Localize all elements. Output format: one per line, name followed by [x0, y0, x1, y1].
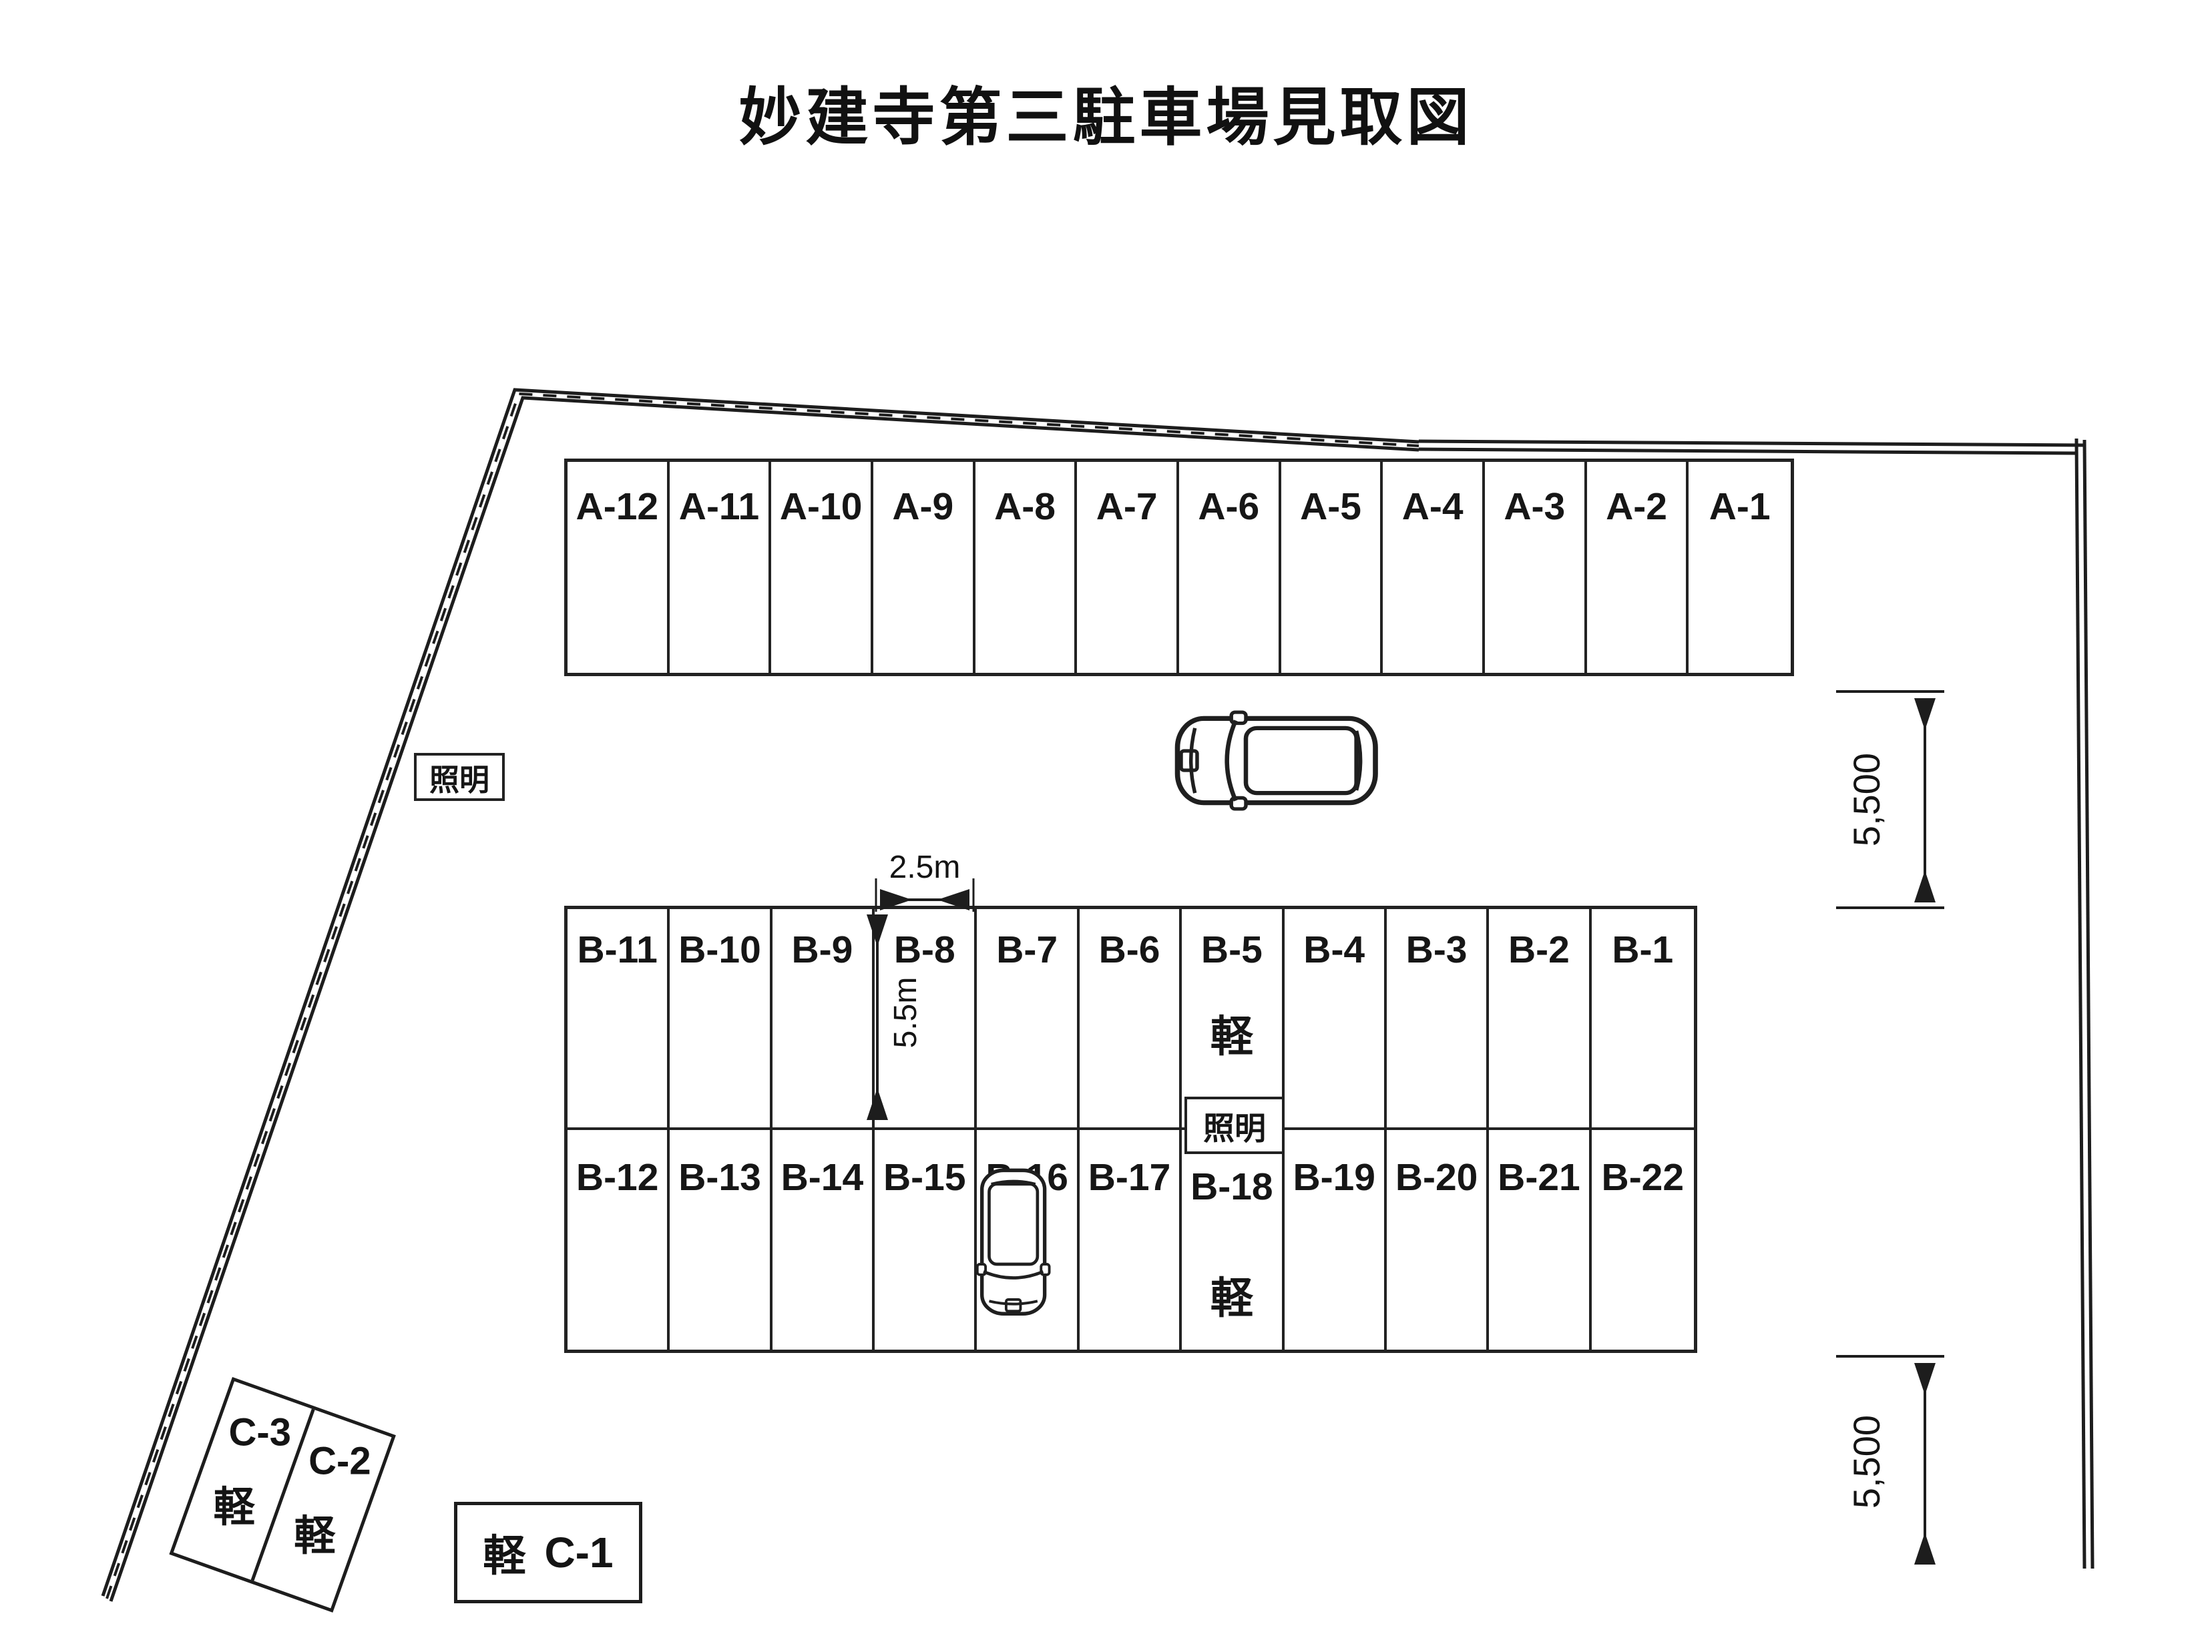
- stall-label: A-2: [1587, 485, 1687, 529]
- stall-label: A-9: [873, 485, 973, 529]
- stall-label: B-6: [1080, 928, 1179, 972]
- car-top-view-horizontal-icon: [1178, 712, 1375, 809]
- stall-label: C-1: [544, 1528, 613, 1577]
- stall-label: C-3: [228, 1410, 290, 1454]
- stall-label: B-12: [568, 1155, 667, 1199]
- kei-car-mark: 軽: [1182, 1264, 1281, 1326]
- stall-label: A-3: [1485, 485, 1584, 529]
- stall-label: C-2: [308, 1438, 371, 1483]
- stall-label: B-4: [1285, 928, 1384, 972]
- parking-map-canvas: 妙建寺第三駐車場見取図 A-12 A-11 A-10 A-9 A-8 A-7 A…: [0, 0, 2212, 1652]
- stall-b-21: B-21: [1489, 1130, 1591, 1350]
- stall-label: B-3: [1387, 928, 1486, 972]
- stall-label: B-11: [568, 928, 667, 972]
- dimension-stall-width: 2.5m: [861, 849, 988, 886]
- stall-b-12: B-12: [568, 1130, 670, 1350]
- stall-a-4: A-4: [1383, 462, 1485, 673]
- stall-label: B-15: [875, 1155, 974, 1199]
- stall-label: A-7: [1077, 485, 1176, 529]
- stall-a-12: A-12: [568, 462, 670, 673]
- kei-car-mark: 軽: [483, 1522, 525, 1583]
- stall-label: B-16: [977, 1155, 1076, 1199]
- stall-label: A-11: [670, 485, 769, 529]
- dimension-upper-aisle: 5,500: [1847, 720, 1887, 880]
- stall-block-b: B-11 B-10 B-9 B-8 B-7 B-6 B-5 軽 B-4 B-3 …: [564, 906, 1697, 1353]
- stall-label: A-10: [771, 485, 871, 529]
- lighting-box-center: 照明: [1184, 1097, 1285, 1154]
- stall-b-22: B-22: [1592, 1130, 1694, 1350]
- stall-label: A-1: [1689, 485, 1791, 529]
- stall-b-7: B-7: [977, 909, 1079, 1130]
- stall-b-9: B-9: [772, 909, 875, 1130]
- stall-b-20: B-20: [1387, 1130, 1489, 1350]
- stall-label: B-5: [1182, 928, 1281, 972]
- stall-label: B-22: [1592, 1155, 1694, 1199]
- stall-b-17: B-17: [1080, 1130, 1182, 1350]
- stall-label: B-20: [1387, 1155, 1486, 1199]
- stall-b-4: B-4: [1285, 909, 1387, 1130]
- stall-a-7: A-7: [1077, 462, 1179, 673]
- stall-label: B-17: [1080, 1155, 1179, 1199]
- kei-car-mark: 軽: [1182, 1003, 1281, 1064]
- stall-b-1: B-1: [1592, 909, 1694, 1130]
- stall-label: B-7: [977, 928, 1076, 972]
- stall-a-3: A-3: [1485, 462, 1587, 673]
- stall-b-16-occupied: B-16: [977, 1130, 1079, 1350]
- stall-a-1: A-1: [1689, 462, 1791, 673]
- page-title: 妙建寺第三駐車場見取図: [0, 67, 2212, 158]
- stall-label: B-14: [772, 1155, 872, 1199]
- stall-a-8: A-8: [975, 462, 1078, 673]
- stall-label: A-6: [1179, 485, 1279, 529]
- stall-b-19: B-19: [1285, 1130, 1387, 1350]
- stall-b-6: B-6: [1080, 909, 1182, 1130]
- lighting-box-west: 照明: [414, 753, 505, 801]
- stall-label: B-19: [1285, 1155, 1384, 1199]
- stall-label: A-12: [568, 485, 667, 529]
- stall-a-2: A-2: [1587, 462, 1689, 673]
- kei-car-mark: 軽: [214, 1473, 255, 1533]
- stall-row-a: A-12 A-11 A-10 A-9 A-8 A-7 A-6 A-5 A-4 A…: [564, 459, 1794, 676]
- stall-b-15: B-15: [875, 1130, 977, 1350]
- dimension-lower-aisle: 5,500: [1847, 1382, 1887, 1542]
- stall-b-2: B-2: [1489, 909, 1591, 1130]
- lighting-label: 照明: [429, 756, 489, 799]
- stall-label: B-10: [670, 928, 769, 972]
- stall-b-13: B-13: [670, 1130, 772, 1350]
- stall-b-3: B-3: [1387, 909, 1489, 1130]
- stall-label: B-1: [1592, 928, 1694, 972]
- kei-car-mark: 軽: [294, 1502, 335, 1562]
- stall-b-11: B-11: [568, 909, 670, 1130]
- stall-b-14: B-14: [772, 1130, 875, 1350]
- stall-label: A-5: [1281, 485, 1381, 529]
- lighting-label: 照明: [1203, 1103, 1266, 1149]
- dimension-stall-depth: 5.5m: [887, 949, 925, 1076]
- stall-a-9: A-9: [873, 462, 975, 673]
- stall-label: A-8: [975, 485, 1075, 529]
- stall-label: B-2: [1489, 928, 1588, 972]
- stall-a-6: A-6: [1179, 462, 1281, 673]
- stall-label: A-4: [1383, 485, 1482, 529]
- stall-label: B-13: [670, 1155, 769, 1199]
- stall-b-18-kei: B-18 軽: [1182, 1130, 1284, 1350]
- stall-label: B-21: [1489, 1155, 1588, 1199]
- stall-b-10: B-10: [670, 909, 772, 1130]
- stall-a-11: A-11: [670, 462, 772, 673]
- stall-pair-c3-c2: C-3 軽 C-2 軽: [169, 1377, 396, 1613]
- stall-a-10: A-10: [771, 462, 873, 673]
- stall-label: B-9: [772, 928, 872, 972]
- stall-c-1-kei: 軽 C-1: [454, 1502, 642, 1603]
- stall-label: B-18: [1182, 1165, 1281, 1209]
- stall-a-5: A-5: [1281, 462, 1383, 673]
